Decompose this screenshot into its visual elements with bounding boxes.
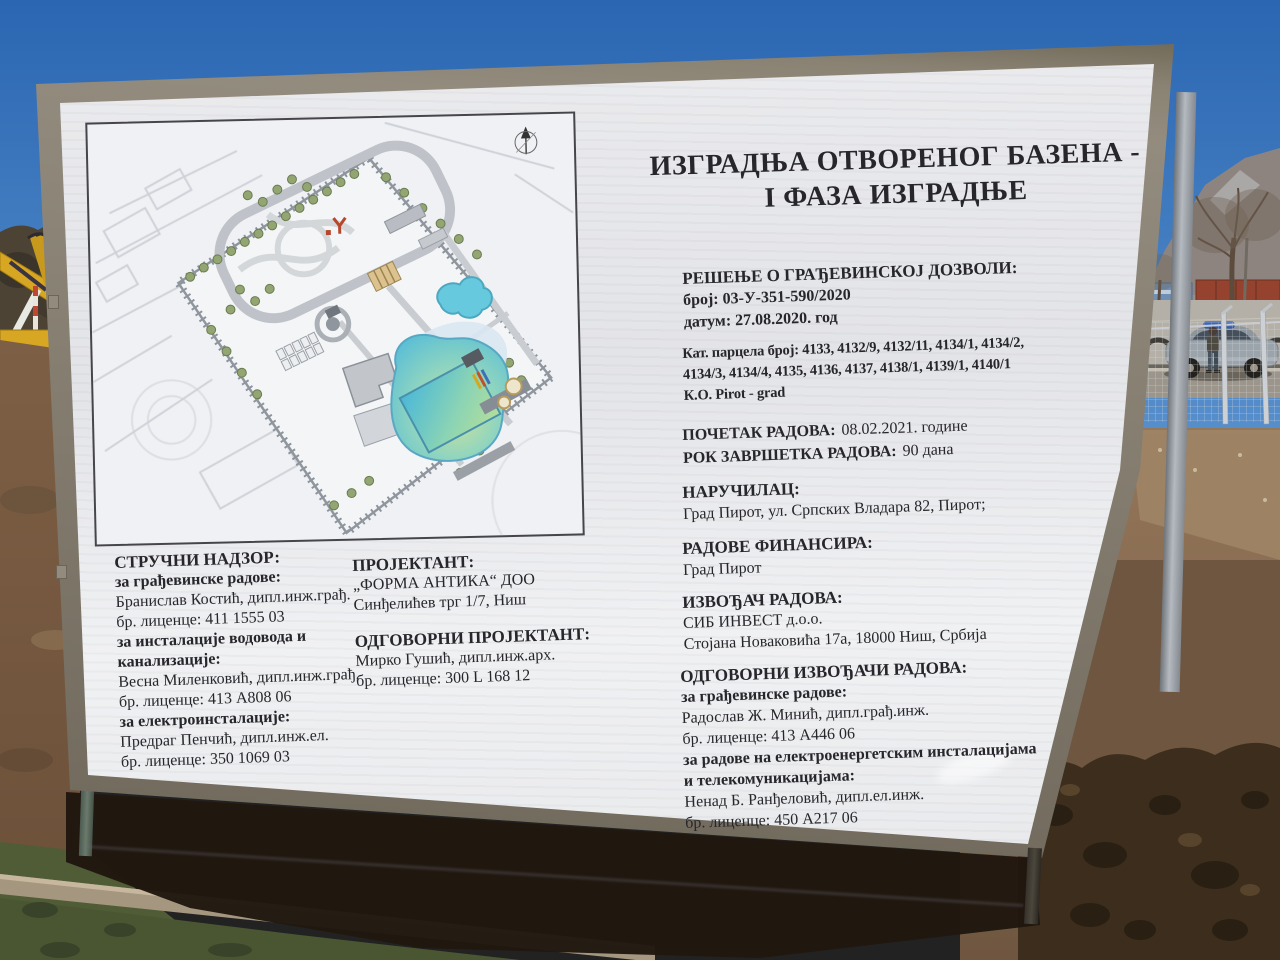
- start-label: ПОЧЕТАК РАДОВА:: [682, 422, 836, 444]
- start-value: 08.02.2021. године: [841, 418, 968, 439]
- designer-block: ПРОЈЕКТАНТ: „ФОРМА АНТИКА“ ДОО Синђелиће…: [352, 548, 592, 692]
- parcel-block: Кат. парцела број: 4133, 4132/9, 4132/11…: [682, 333, 1025, 407]
- deadline-label: РОК ЗАВРШЕТКА РАДОВА:: [683, 443, 897, 467]
- north-arrow-icon: [515, 126, 537, 154]
- client-block: НАРУЧИЛАЦ: Град Пирот, ул. Српских Влада…: [682, 472, 986, 526]
- mini-pool: [506, 378, 522, 394]
- responsible-contractors-block: ОДГОВОРНИ ИЗВОЂАЧИ РАДОВА: за грађевинск…: [680, 654, 1039, 834]
- site-plan-map: [87, 114, 582, 545]
- mini-pool: [498, 396, 510, 408]
- billboard-content: ИЗГРАДЊА ОТВОРЕНОГ БАЗЕНА - I ФАЗА ИЗГРА…: [0, 0, 1280, 960]
- dates-block: ПОЧЕТАК РАДОВА:08.02.2021. године РОК ЗА…: [682, 415, 969, 470]
- permit-block: РЕШЕЊЕ О ГРАЂЕВИНСКОЈ ДОЗВОЛИ: број: 03-…: [682, 257, 1019, 334]
- site-plan: [85, 111, 584, 546]
- contractor-block: ИЗВОЂАЧ РАДОВА: СИБ ИНВЕСТ д.о.о. Стојан…: [682, 582, 987, 655]
- supervision-block: СТРУЧНИ НАДЗОР: за грађевинске радове: Б…: [114, 545, 362, 773]
- deadline-value: 90 дана: [902, 441, 953, 460]
- financier-block: РАДОВЕ ФИНАНСИРА: Град Пирот: [682, 532, 874, 582]
- construction-site-photo: ИЗГРАДЊА ОТВОРЕНОГ БАЗЕНА - I ФАЗА ИЗГРА…: [0, 0, 1280, 960]
- billboard-title: ИЗГРАДЊА ОТВОРЕНОГ БАЗЕНА - I ФАЗА ИЗГРА…: [622, 134, 1169, 220]
